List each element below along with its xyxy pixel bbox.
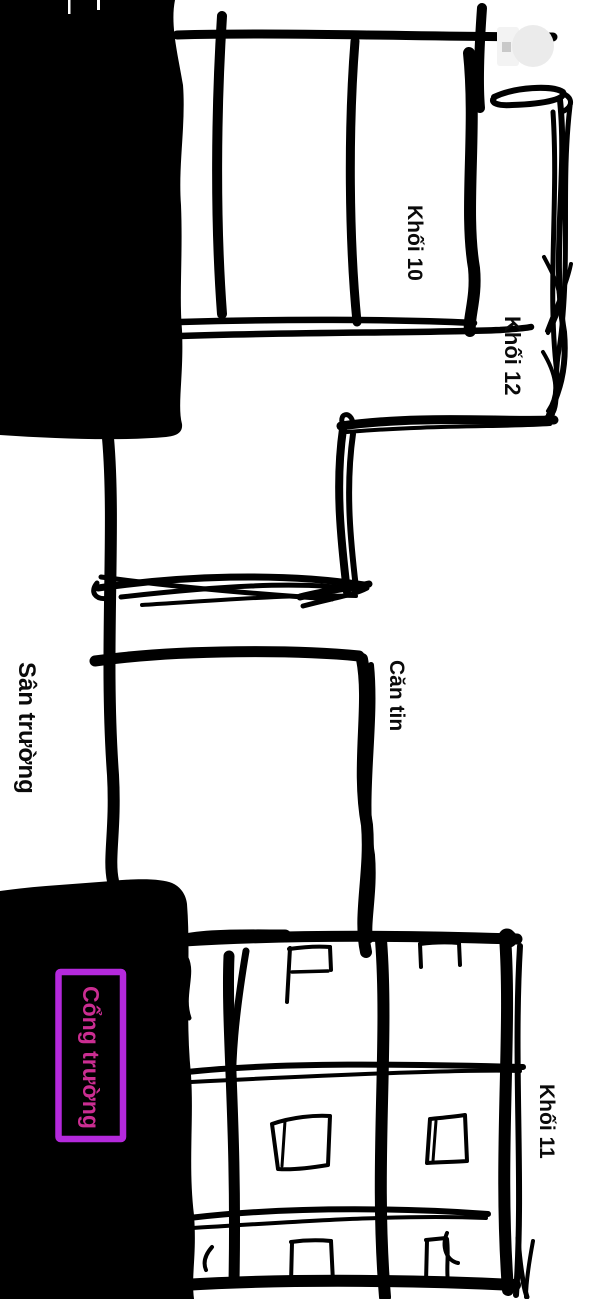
label-cong-truong: Cổng trường [79, 986, 102, 1129]
label-khoi-12: Khối 12 [501, 316, 523, 395]
building-khoi-10-outline [177, 8, 553, 336]
ink-gap-sliver [68, 0, 71, 14]
walkway-corner-strokes [300, 415, 554, 606]
camera-cutout-icon [497, 25, 554, 67]
label-san-truong: Sân trường [14, 662, 38, 794]
label-khoi-11: Khối 11 [536, 1084, 557, 1159]
blacked-region-top-left [0, 0, 184, 439]
building-khoi-11-grid [183, 936, 533, 1297]
label-can-tin: Căn tin [386, 660, 407, 731]
school-map-drawing: Khối 10 Khối 12 Căn tin Sân trường Cổng … [0, 0, 600, 1299]
label-khoi-10: Khối 10 [404, 205, 425, 281]
ink-gap-sliver [97, 0, 100, 10]
